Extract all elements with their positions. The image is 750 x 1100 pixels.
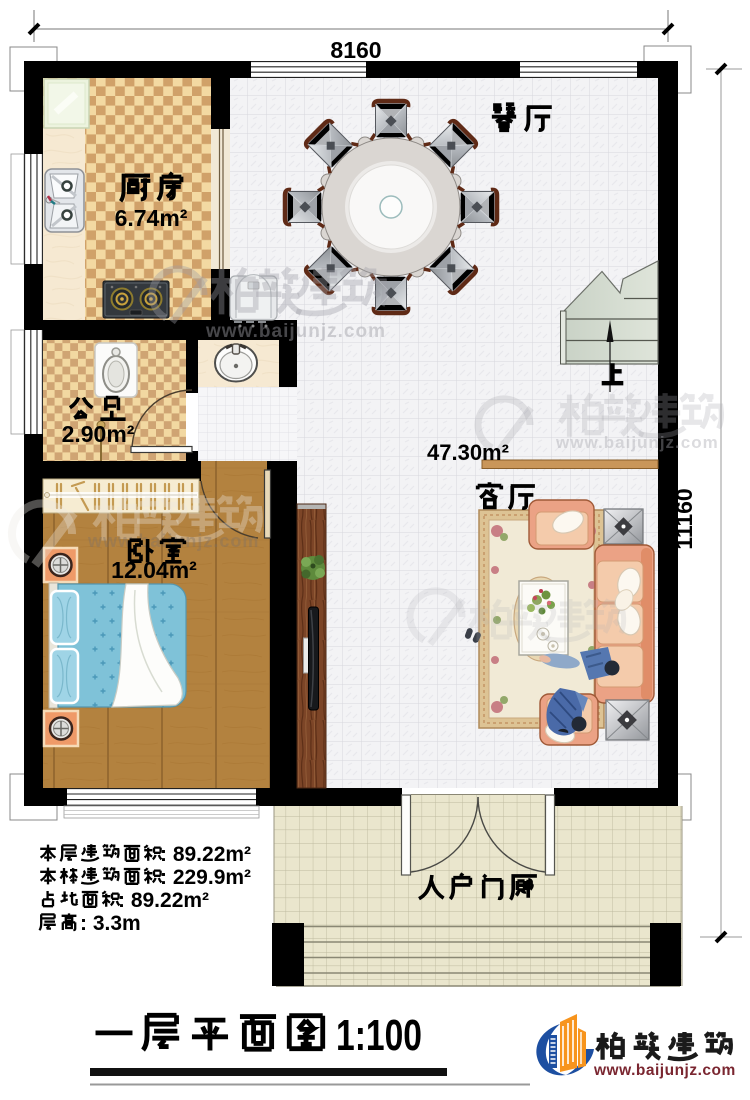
svg-text:www.baijunjz.com: www.baijunjz.com: [593, 1062, 736, 1079]
svg-text:47.30m²: 47.30m²: [427, 440, 509, 465]
svg-text:1:100: 1:100: [336, 1011, 422, 1060]
svg-text:www.baijunjz.com: www.baijunjz.com: [205, 321, 386, 342]
svg-text:11160: 11160: [671, 488, 697, 549]
svg-text:8160: 8160: [330, 37, 381, 63]
svg-text:: 89.22m²: : 89.22m²: [160, 843, 251, 866]
svg-text:www.baijunjz.com: www.baijunjz.com: [555, 433, 719, 452]
svg-text:: 89.22m²: : 89.22m²: [118, 889, 209, 912]
svg-text:12.04m²: 12.04m²: [111, 557, 197, 583]
svg-text:6.74m²: 6.74m²: [115, 205, 188, 231]
svg-text:: 3.3m: : 3.3m: [80, 912, 141, 935]
svg-text:: 229.9m²: : 229.9m²: [160, 866, 251, 889]
svg-text:2.90m²: 2.90m²: [62, 421, 135, 447]
